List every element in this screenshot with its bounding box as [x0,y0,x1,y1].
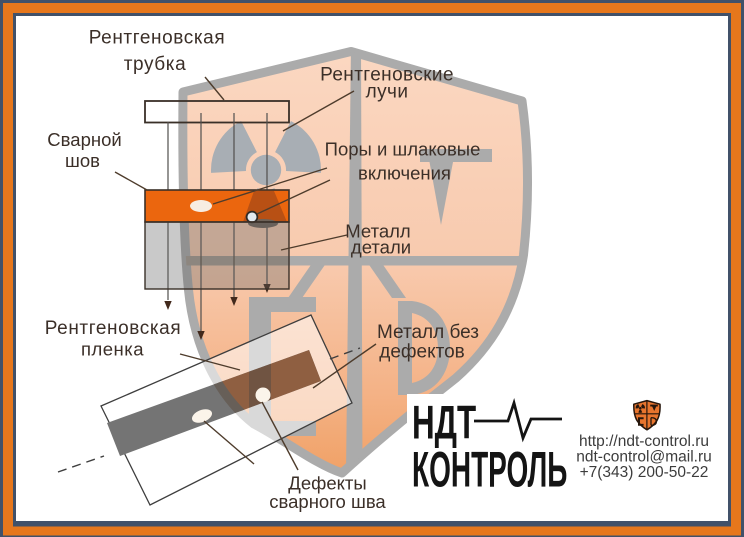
svg-text:КОНТРОЛЬ: КОНТРОЛЬ [412,441,567,498]
svg-text:http://ndt-control.ru: http://ndt-control.ru [579,433,709,450]
svg-text:Рентгеновская: Рентгеновская [45,318,182,339]
svg-text:Рентгеновская: Рентгеновская [89,28,226,49]
svg-text:Сварной: Сварной [47,129,121,150]
svg-text:детали: детали [351,237,411,258]
svg-text:сварного шва: сварного шва [269,491,386,512]
svg-text:шов: шов [65,150,100,171]
svg-text:Поры и шлаковые: Поры и шлаковые [325,139,481,160]
svg-text:дефектов: дефектов [379,342,465,363]
svg-text:включения: включения [358,163,451,184]
svg-text:ndt-control@mail.ru: ndt-control@mail.ru [576,449,711,466]
svg-text:лучи: лучи [366,82,409,103]
svg-text:+7(343) 200-50-22: +7(343) 200-50-22 [580,464,709,481]
svg-text:трубка: трубка [124,54,187,75]
svg-text:Металл без: Металл без [377,322,479,343]
svg-text:пленка: пленка [81,339,144,360]
